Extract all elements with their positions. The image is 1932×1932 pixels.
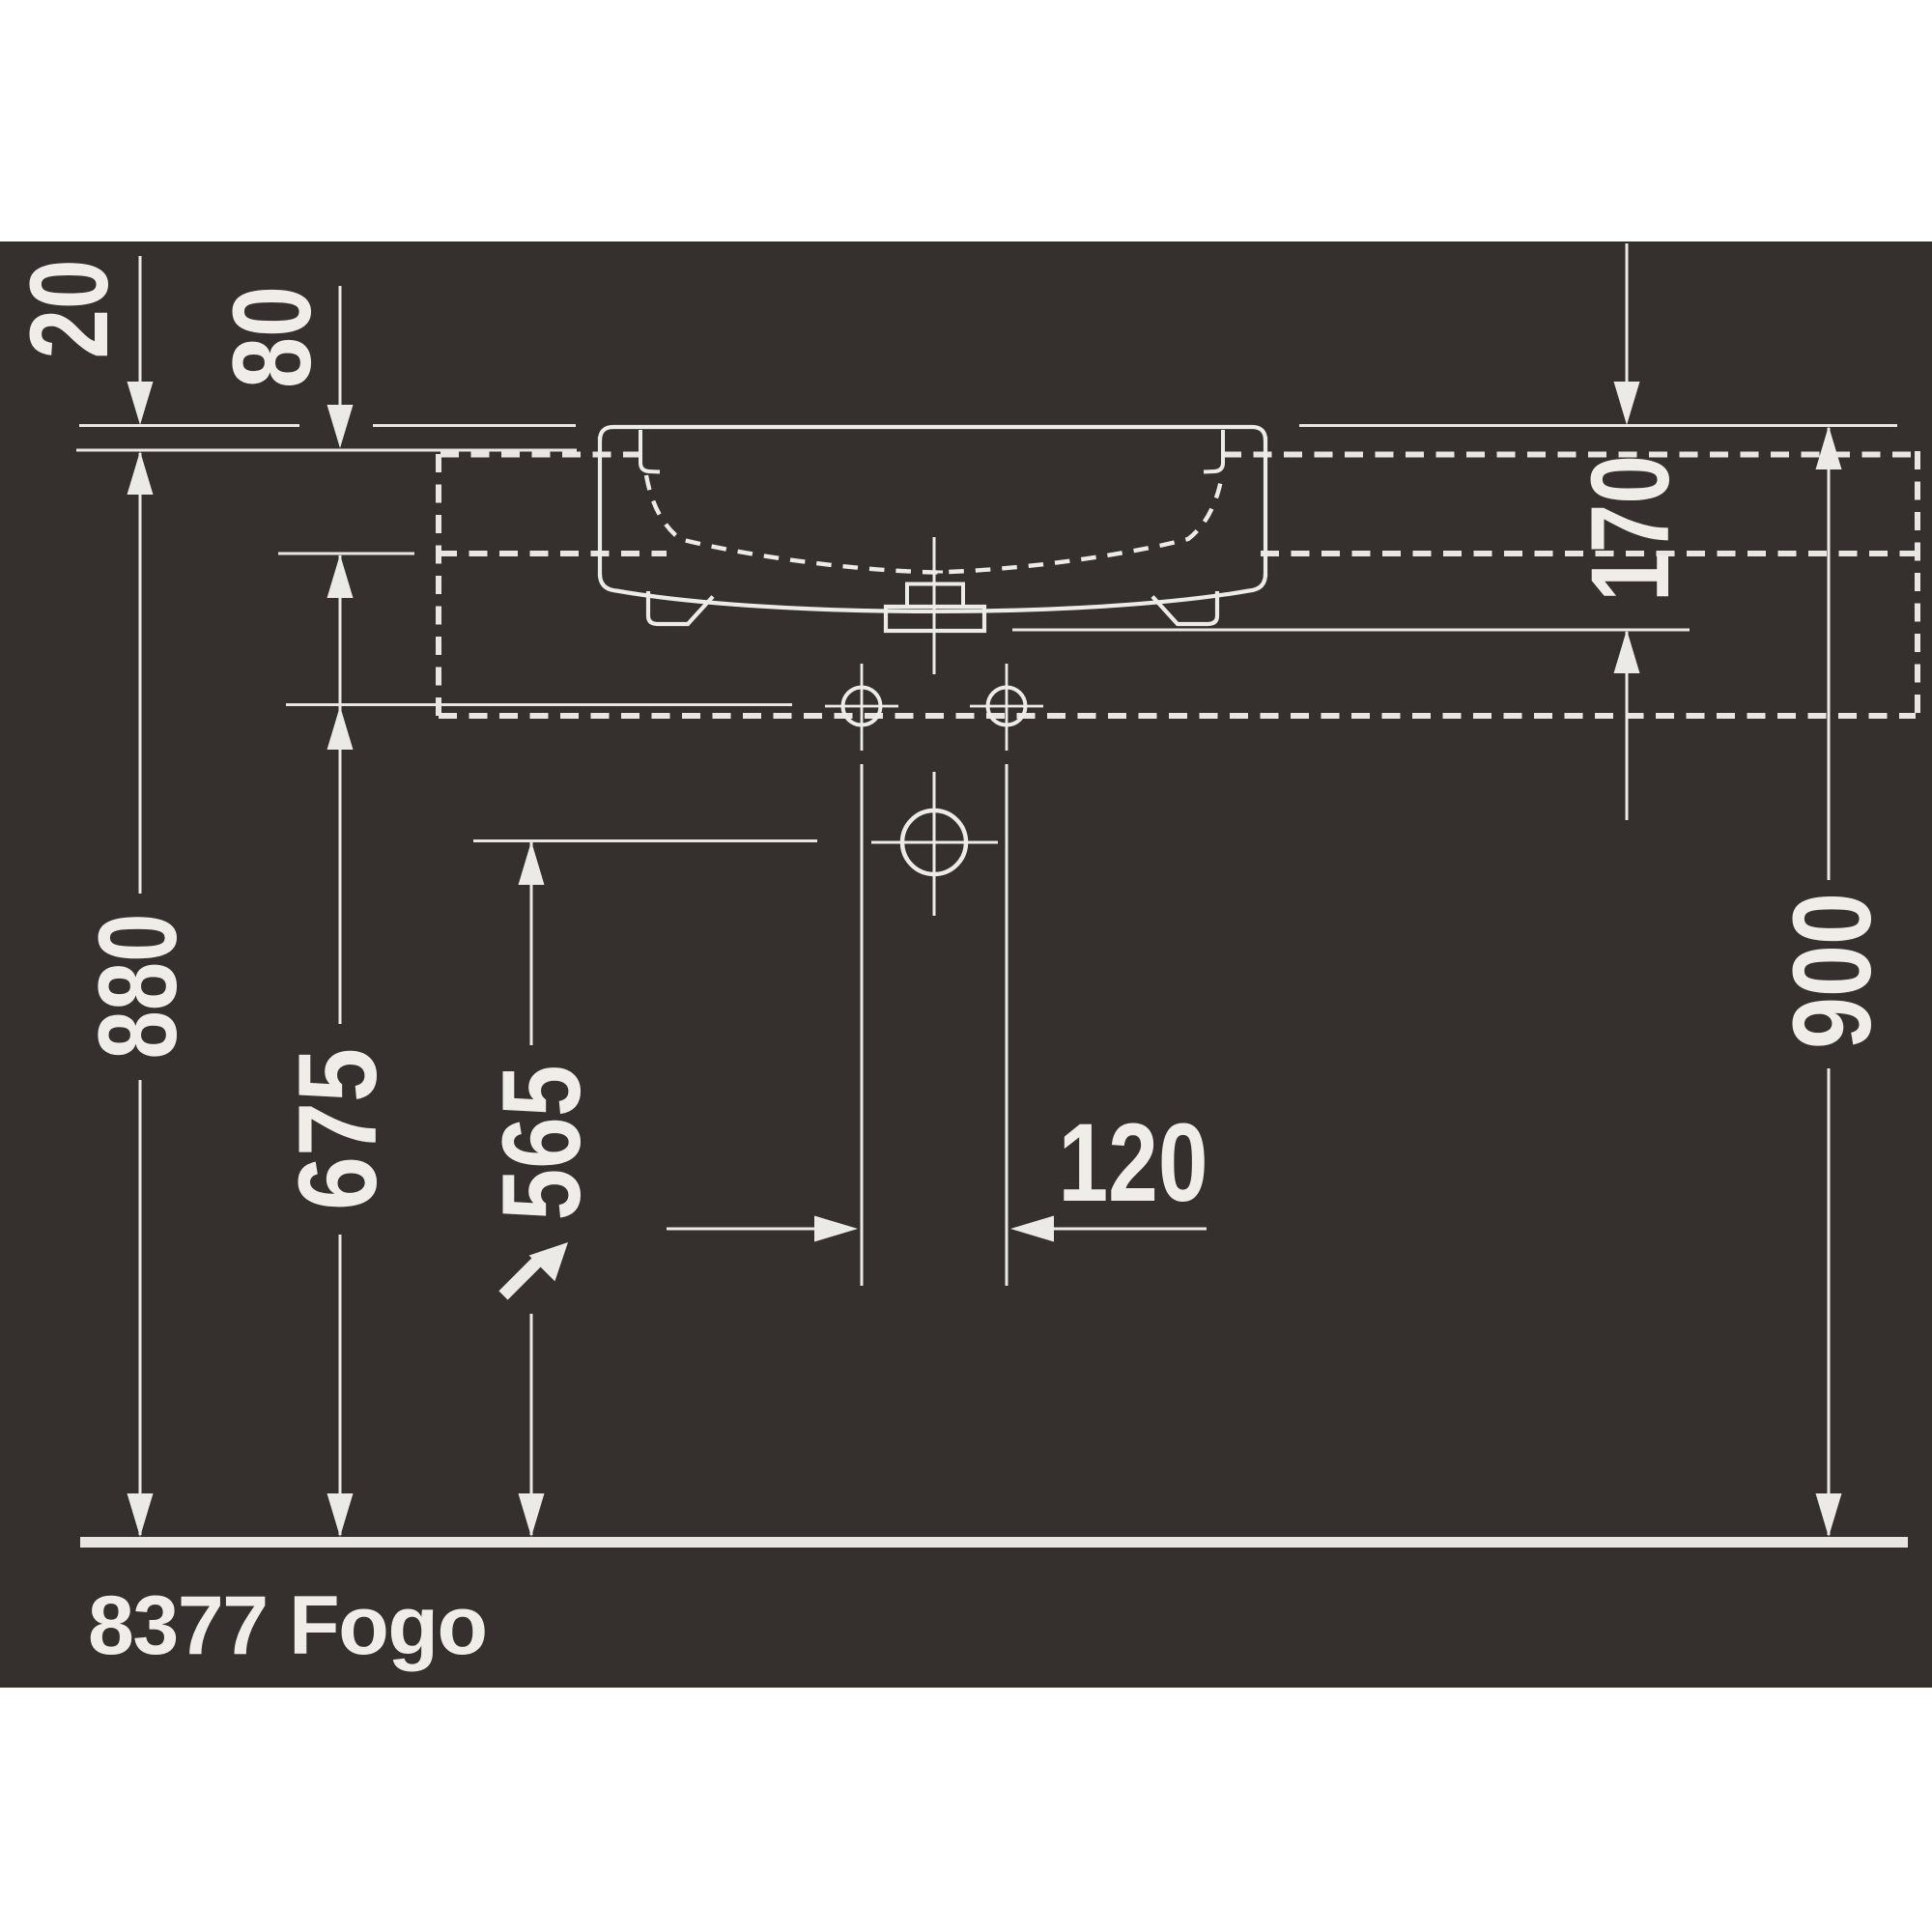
svg-text:8377 Fogo: 8377 Fogo xyxy=(88,1579,488,1672)
svg-text:880: 880 xyxy=(76,914,200,1060)
svg-text:80: 80 xyxy=(211,286,334,388)
svg-text:675: 675 xyxy=(276,1048,400,1210)
svg-text:900: 900 xyxy=(1771,893,1894,1049)
svg-text:120: 120 xyxy=(1059,1101,1208,1225)
svg-text:565: 565 xyxy=(480,1065,604,1221)
svg-text:20: 20 xyxy=(8,260,131,359)
svg-text:170: 170 xyxy=(1569,455,1692,602)
